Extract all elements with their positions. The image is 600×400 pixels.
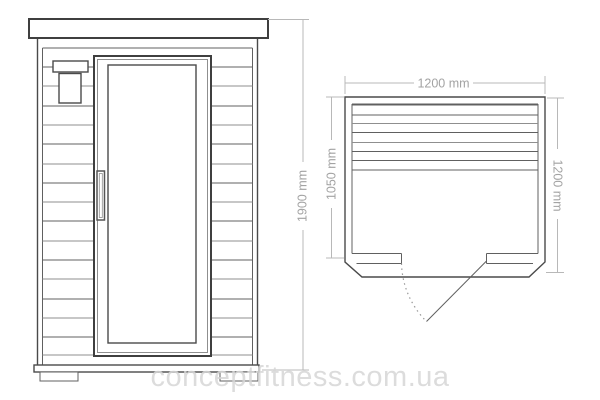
control-display: [53, 61, 88, 72]
dimension-height: 1900 mm: [262, 20, 310, 371]
door-handle: [97, 171, 105, 220]
dimension-inner-depth: 1050 mm: [325, 97, 345, 258]
sauna-top-view: 1200 mm 1050 mm 1200 mm: [325, 76, 565, 322]
dimension-label-width: 1200 mm: [417, 77, 469, 91]
door-glass: [108, 65, 196, 343]
dimension-label-depth: 1200 mm: [551, 159, 565, 211]
dimension-depth: 1200 mm: [546, 98, 565, 273]
bench-slats: [352, 105, 538, 170]
roof-panel: [29, 19, 268, 38]
control-box: [59, 74, 81, 104]
door: [94, 56, 211, 356]
wall-slats-right: [211, 67, 253, 355]
foot-left: [40, 372, 78, 381]
dimension-width: 1200 mm: [345, 76, 545, 94]
wall-slats-left: [43, 67, 95, 355]
technical-drawing-page: 1900 mm: [0, 0, 600, 400]
watermark-text: conceptfitness.com.ua: [150, 361, 449, 393]
dimension-label-height: 1900 mm: [296, 170, 310, 222]
dimension-label-inner-depth: 1050 mm: [325, 148, 339, 200]
control-panel: [53, 61, 88, 103]
sauna-front-view: 1900 mm: [29, 19, 310, 381]
sauna-dimensions-diagram: 1900 mm: [0, 0, 600, 400]
